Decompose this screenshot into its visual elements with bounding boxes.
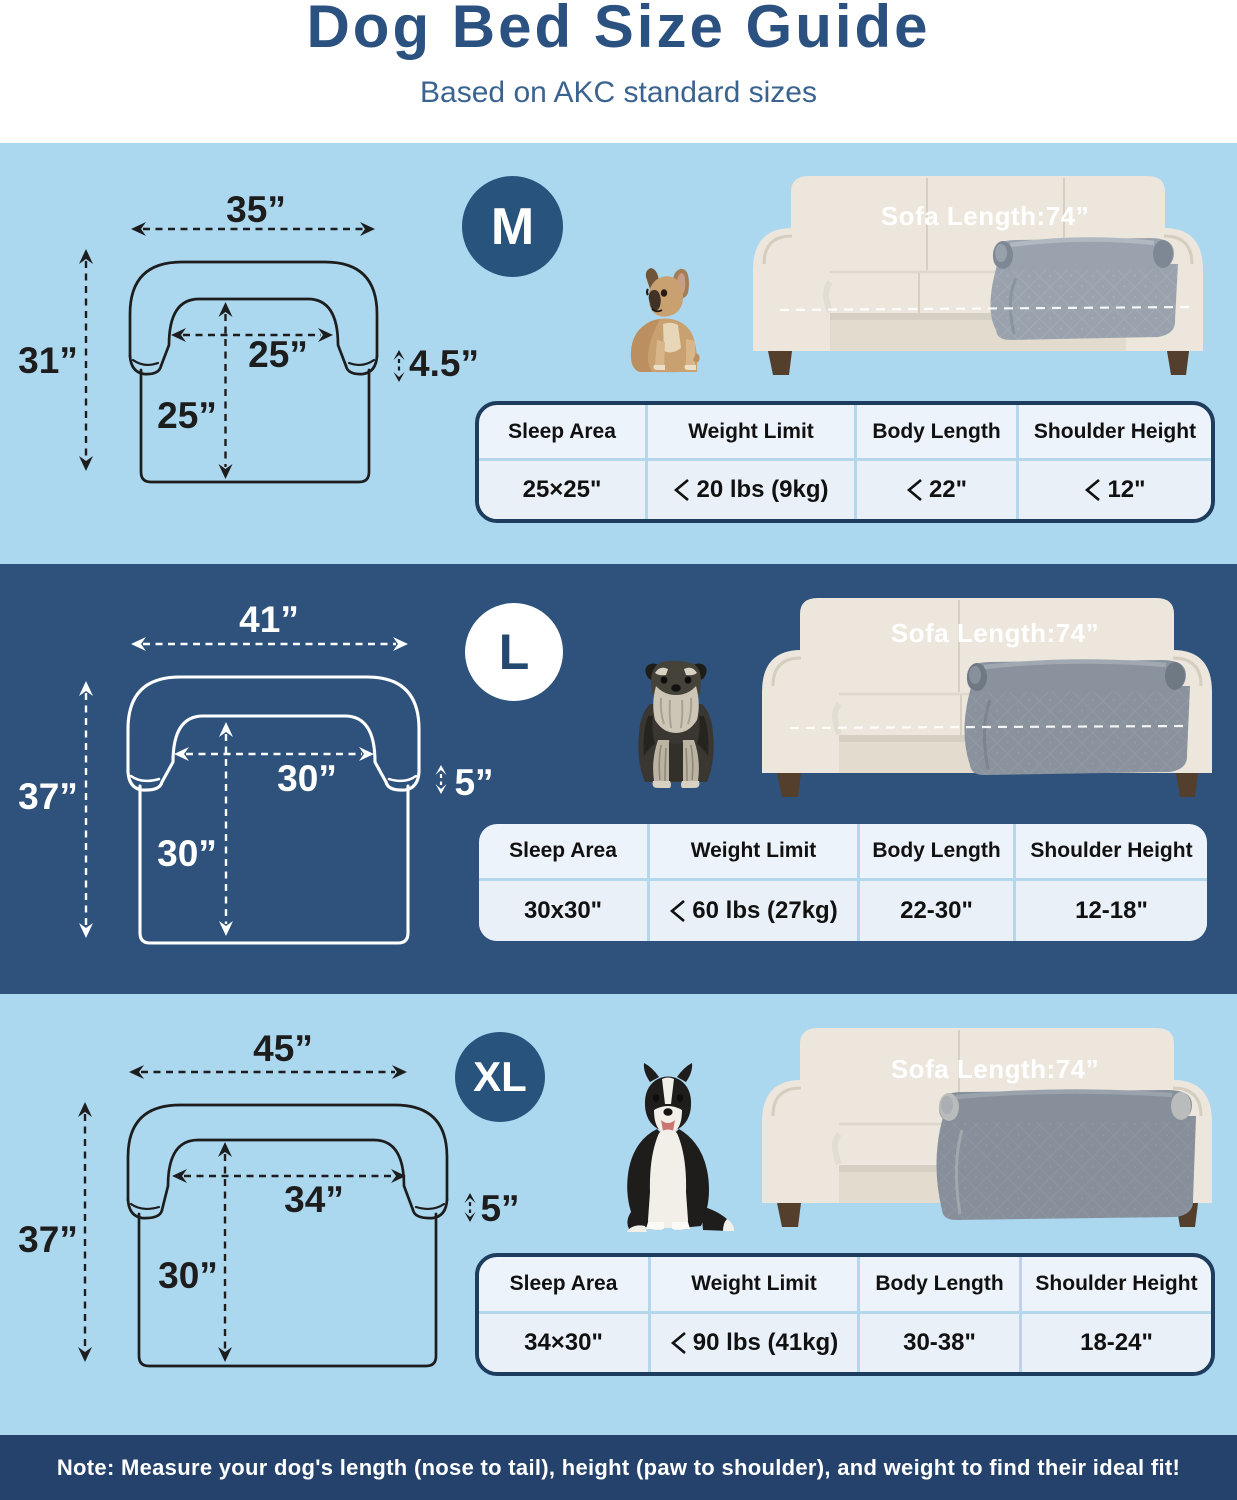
svg-text:25”: 25” — [157, 395, 217, 436]
svg-text:4.5”: 4.5” — [409, 343, 479, 384]
svg-text:30”: 30” — [157, 833, 217, 874]
svg-text:5”: 5” — [480, 1188, 519, 1229]
svg-text:Sofa Length:74”: Sofa Length:74” — [891, 1054, 1099, 1084]
svg-text:30”: 30” — [277, 758, 337, 799]
svg-text:35”: 35” — [226, 189, 286, 230]
svg-text:Sofa Length:74”: Sofa Length:74” — [881, 201, 1089, 231]
svg-text:30”: 30” — [158, 1255, 218, 1296]
svg-text:37”: 37” — [18, 1219, 78, 1260]
svg-text:41”: 41” — [239, 599, 299, 640]
svg-text:37”: 37” — [18, 776, 78, 817]
svg-text:31”: 31” — [18, 340, 78, 381]
svg-text:Sofa Length:74”: Sofa Length:74” — [891, 618, 1099, 648]
svg-text:5”: 5” — [454, 762, 493, 803]
svg-text:34”: 34” — [284, 1179, 344, 1220]
svg-text:25”: 25” — [248, 334, 308, 375]
svg-text:45”: 45” — [253, 1028, 313, 1069]
